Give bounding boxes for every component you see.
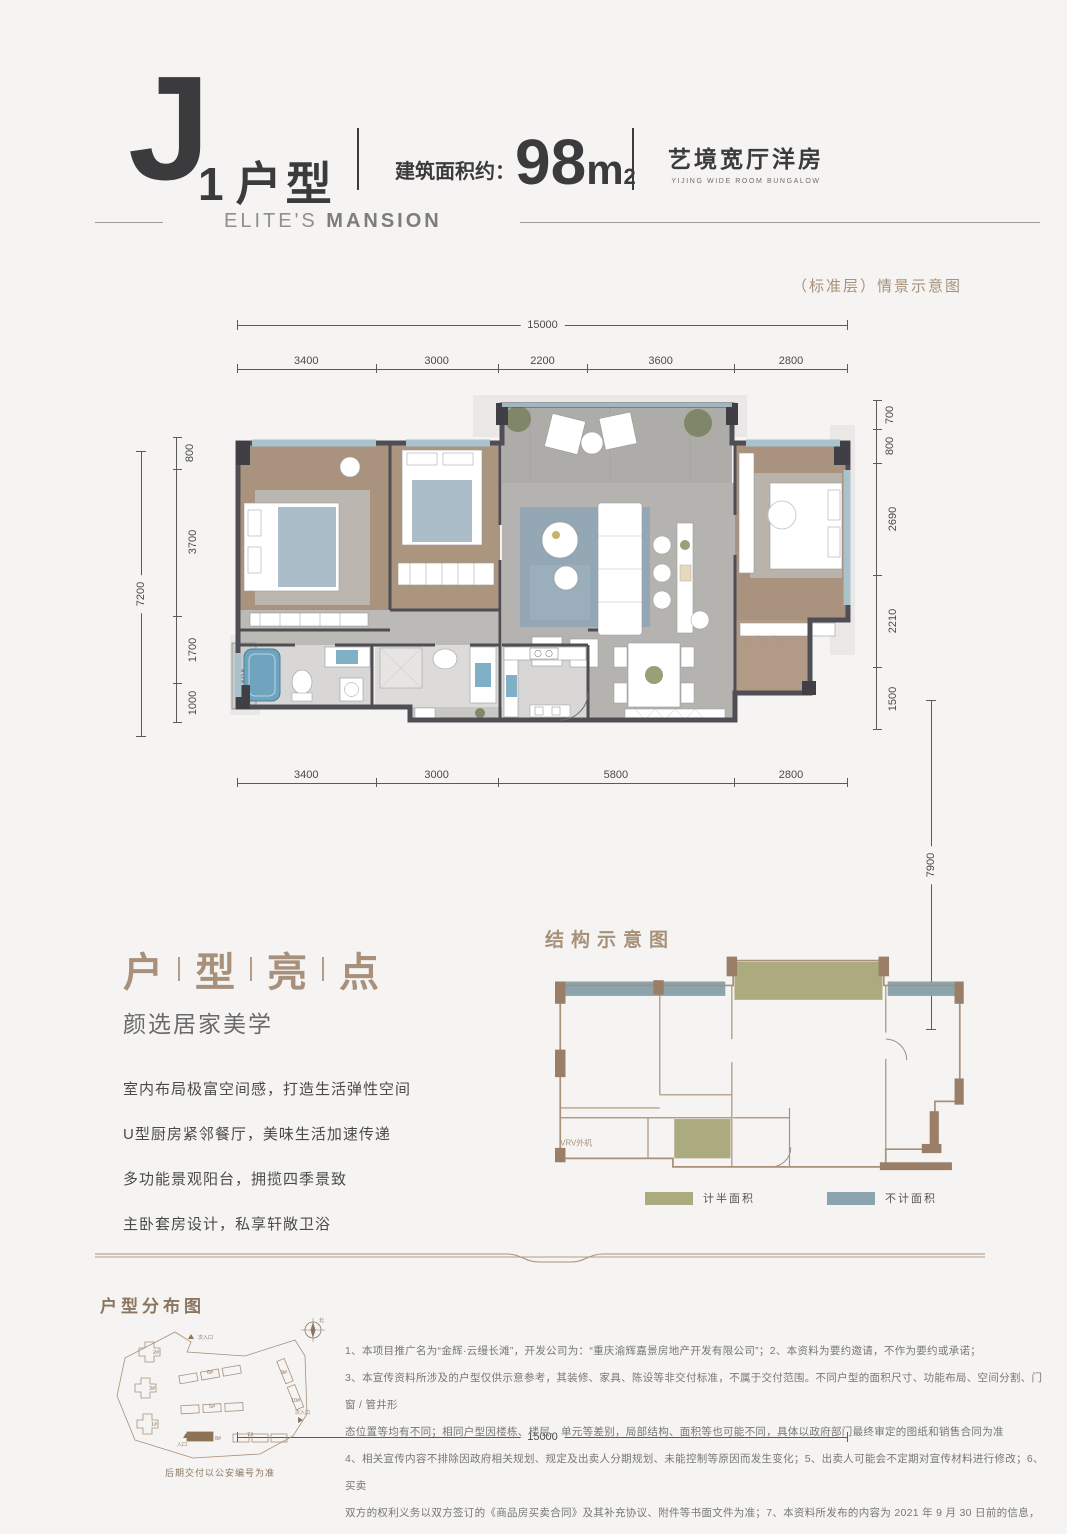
window [406, 440, 490, 447]
structure-title: 结构示意图 [545, 925, 675, 952]
dresser [398, 563, 494, 585]
highlight-item: 主卧套房设计，私享轩敞卫浴 [123, 1213, 411, 1234]
half-area-laundry [674, 1119, 730, 1158]
stool [653, 536, 671, 554]
brand-en: ELITE'S MANSION [224, 210, 442, 233]
toilet [433, 649, 457, 669]
dim-seg: 3700 [176, 469, 196, 616]
dim-top-total-label: 15000 [520, 319, 565, 331]
plant [505, 406, 531, 432]
window [844, 470, 851, 605]
dresser [250, 613, 368, 626]
compass-icon: 北 [301, 1317, 325, 1342]
dim-seg: 3600 [587, 346, 734, 370]
product-name-block: 艺境宽厅洋房 YIJING WIDE ROOM BUNGALOW [668, 140, 824, 185]
legend-item-half-area: 计半面积 [645, 1190, 755, 1206]
highlights-list: 室内布局极富空间感，打造生活弹性空间 U型厨房紧邻餐厅，美味生活加速传递 多功能… [123, 1078, 411, 1258]
highlighted-building [187, 1432, 213, 1441]
dim-seg: 2210 [876, 575, 896, 667]
dining-chair [614, 647, 627, 667]
disclaimer-line: 1、本项目推广名为“金辉·云缦长滩”，开发公司为：“重庆渝辉嘉景房地产开发有限公… [345, 1338, 1045, 1365]
brand-en-bold: MANSION [326, 210, 441, 232]
dim-left-segments: 800 3700 1700 1000 [176, 437, 196, 723]
dim-seg: 700 [876, 400, 896, 429]
dim-seg: 2800 [734, 346, 848, 370]
window [235, 653, 242, 697]
dim-seg: 800 [876, 429, 896, 462]
highlights-title-char: 亮 [267, 940, 307, 998]
building-label: 1# [151, 1422, 158, 1428]
product-name: 艺境宽厅洋房 [668, 140, 824, 174]
north-label: 北 [319, 1317, 324, 1324]
dim-seg: 1000 [176, 683, 196, 723]
disclaimer: 1、本项目推广名为“金辉·云缦长滩”，开发公司为：“重庆渝辉嘉景房地产开发有限公… [345, 1338, 1045, 1534]
structure-vrv-label: VRV外机 [560, 1137, 592, 1147]
legend-item-uncounted-area: 不计面积 [827, 1190, 937, 1206]
cabinet [415, 708, 435, 719]
dim-left-total: 7200 [128, 451, 154, 737]
area-value: 98 [515, 130, 586, 194]
dining-chair [614, 683, 627, 703]
unit-letter: J [128, 55, 206, 203]
lounge-chair [599, 412, 637, 450]
stool [653, 591, 671, 609]
entrance-marker [188, 1334, 194, 1339]
unit-number: 1 [198, 157, 228, 211]
highlights-title-char: 户 [123, 940, 163, 998]
disclaimer-line: 3、本宣传资料所涉及的户型仅供示意参考，其装修、家具、陈设等非交付标准，不属于交… [345, 1365, 1045, 1419]
dim-seg: 2200 [498, 346, 588, 370]
building-label: 3# [149, 1386, 156, 1392]
entrance-label: 次入口 [295, 1409, 310, 1416]
entrance-label: 次入口 [198, 1334, 213, 1341]
chair [340, 457, 360, 477]
disclaimer-line: 双方的权利义务以双方签订的《商品房买卖合同》及其补充协议、附件等书面文件为准；7… [345, 1500, 1045, 1534]
toilet [292, 670, 312, 694]
washer [340, 678, 363, 701]
sink [336, 650, 358, 664]
highlight-item: U型厨房紧邻餐厅，美味生活加速传递 [123, 1123, 411, 1144]
dim-bottom-segments: 3400 3000 5800 2800 [237, 760, 848, 784]
dim-top-segments: 3400 3000 2200 3600 2800 [237, 346, 848, 370]
dim-right-total-label: 7900 [925, 846, 937, 884]
plant [645, 666, 663, 684]
unit-label: 户型 [236, 148, 336, 214]
dim-seg: 800 [176, 437, 196, 469]
dim-top-total: 15000 [237, 318, 848, 332]
building-label: 8# [215, 1436, 222, 1442]
highlights-subtitle: 颜选居家美学 [123, 1005, 273, 1039]
area-label: 建筑面积约： [395, 155, 515, 184]
building-label: 2# [153, 1350, 160, 1356]
highlight-item: 多功能景观阳台，拥揽四季景致 [123, 1168, 411, 1189]
building-label: 7# [247, 1432, 254, 1438]
poster-page: J 1 户型 建筑面积约： 98m2 艺境宽厅洋房 YIJING WIDE RO… [0, 0, 1067, 1534]
disclaimer-line: 态位置等均有不同；相同户型因楼栋、楼层、单元等差别，局部结构、面积等也可能不同，… [345, 1419, 1045, 1446]
dim-seg: 5800 [498, 760, 734, 784]
highlights-title-char: 型 [195, 940, 235, 998]
brand-en-light: ELITE'S [224, 210, 318, 232]
plant [684, 409, 712, 437]
structure-diagram: VRV外机 [545, 950, 985, 1188]
kitchen-sink [506, 675, 517, 697]
balcony-railing [502, 403, 732, 407]
dim-seg: 3400 [237, 760, 376, 784]
sink [475, 663, 491, 687]
brand-line-right [520, 222, 1040, 223]
legend-label: 计半面积 [703, 1190, 755, 1206]
window [252, 440, 376, 447]
product-name-en: YIJING WIDE ROOM BUNGALOW [668, 178, 824, 185]
building-label: 9# [281, 1370, 288, 1376]
structure-legend: 计半面积 不计面积 [645, 1190, 937, 1206]
section-divider [95, 1246, 985, 1270]
disclaimer-line: 4、相关宣传内容不排除因政府相关规划、规定及出卖人分期规划、未能控制等原因而发生… [345, 1446, 1045, 1500]
legend-label: 不计面积 [885, 1190, 937, 1206]
legend-swatch-olive [645, 1192, 693, 1205]
header-divider-1 [357, 128, 359, 190]
dim-seg: 1700 [176, 616, 196, 684]
dim-seg: 2800 [734, 760, 848, 784]
unit-letter-text: J [128, 46, 206, 211]
brand-line-left [95, 222, 163, 223]
side-table [581, 432, 603, 454]
area-block: 建筑面积约： 98m2 [395, 130, 636, 194]
coffee-table [542, 522, 578, 558]
bench [740, 623, 835, 636]
highlight-item: 室内布局极富空间感，打造生活弹性空间 [123, 1078, 411, 1099]
highlights-title: 户型亮点 [123, 940, 379, 998]
building-label: 5# [209, 1404, 216, 1410]
siteplan-title: 户型分布图 [100, 1292, 205, 1317]
scene-note: （标准层）情景示意图 [792, 275, 962, 296]
building-label: 10# [291, 1398, 301, 1404]
header-divider-2 [632, 128, 634, 190]
siteplan-caption: 后期交付以公安编号为准 [95, 1466, 345, 1479]
dim-seg: 1500 [876, 667, 896, 730]
area-unit: m [586, 146, 623, 194]
dim-left-total-label: 7200 [135, 575, 147, 613]
dining-chair [681, 647, 694, 667]
plant [475, 708, 485, 718]
highlights-title-char: 点 [339, 940, 379, 998]
dim-seg: 3000 [376, 346, 498, 370]
dining-chair [681, 683, 694, 703]
building-label: 6# [207, 1370, 214, 1376]
floor-plan: VRV [230, 395, 855, 730]
siteplan-map: 2# 3# 1# 6# 5# 8# 7# 9# 10# 次入口 入口 次入口 北 [95, 1316, 345, 1468]
entrance-label: 入口 [177, 1442, 187, 1448]
wardrobe [739, 453, 754, 573]
dim-seg: 2690 [876, 463, 896, 575]
stove [530, 648, 558, 659]
uncounted-bay-left [562, 982, 726, 996]
half-area-balcony [734, 962, 882, 1000]
stool [653, 564, 671, 582]
window [746, 440, 840, 447]
dim-seg: 3400 [237, 346, 376, 370]
dim-right-segments: 700 800 2690 2210 1500 [876, 400, 896, 730]
uncounted-bay-right [888, 982, 956, 996]
unit-title: 1 户型 [198, 148, 336, 214]
legend-swatch-blue [827, 1192, 875, 1205]
dim-seg: 3000 [376, 760, 498, 784]
